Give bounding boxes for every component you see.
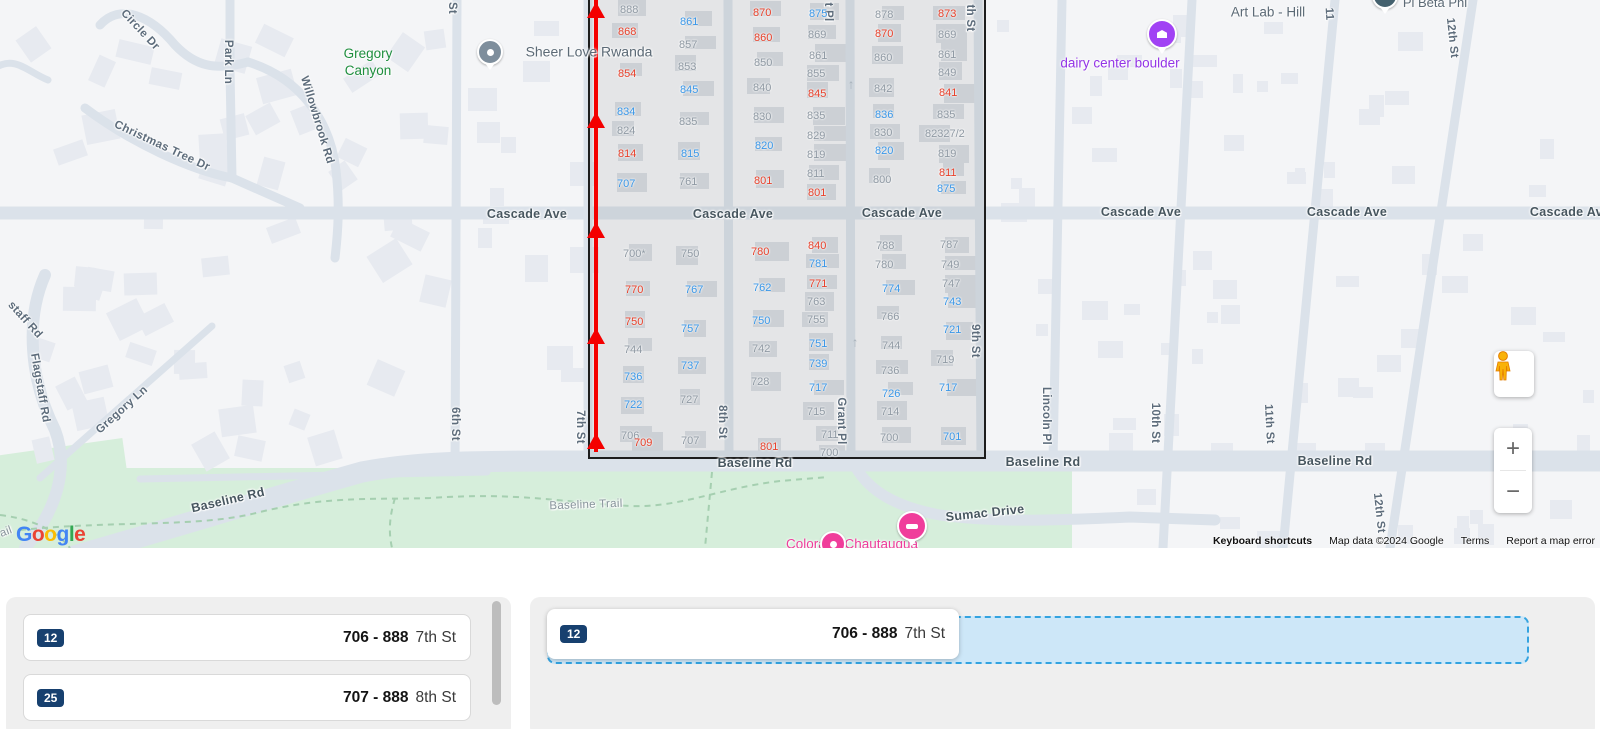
google-logo-letter: G [16, 523, 32, 546]
google-logo: Google [16, 523, 85, 547]
pins-layer [0, 0, 1600, 548]
keyboard-shortcuts-link[interactable]: Keyboard shortcuts [1213, 535, 1312, 547]
address-range-label: 706 - 8887th St [587, 625, 959, 643]
page: Circle DrPark LnWillowbrook RdChristmas … [0, 0, 1600, 729]
route-card[interactable]: 12 706 - 8887th St [547, 609, 959, 659]
address-range-label: 706 - 8887th St [64, 629, 470, 647]
poi-dot-pin[interactable] [1372, 0, 1398, 9]
count-badge: 12 [560, 625, 587, 643]
street-list-panel: 12706 - 8887th St25707 - 8888th St [6, 597, 511, 729]
pin-glyph [1157, 30, 1167, 38]
zoom-control: + − [1494, 428, 1532, 513]
poi-dot-pin[interactable] [820, 531, 846, 548]
address-range-label: 707 - 8888th St [64, 689, 470, 707]
pegman-icon [1494, 351, 1512, 381]
pin-glyph [487, 49, 494, 56]
street-range-card[interactable]: 25707 - 8888th St [23, 674, 471, 721]
terms-link[interactable]: Terms [1461, 535, 1490, 547]
street-range-card[interactable]: 12706 - 8887th St [23, 614, 471, 661]
pegman-control[interactable] [1494, 351, 1534, 397]
report-error-link[interactable]: Report a map error [1506, 535, 1595, 547]
pin-glyph [830, 541, 837, 548]
map-attribution: Keyboard shortcuts Map data ©2024 Google… [1213, 535, 1595, 547]
google-map[interactable]: Circle DrPark LnWillowbrook RdChristmas … [0, 0, 1600, 548]
zoom-in-button[interactable]: + [1494, 428, 1532, 470]
google-logo-letter: o [32, 523, 44, 546]
google-logo-letter: g [57, 523, 69, 546]
route-builder-panel: 12 706 - 8887th St [530, 597, 1595, 729]
museum-pin[interactable] [1147, 19, 1177, 49]
zoom-out-button[interactable]: − [1494, 471, 1532, 513]
google-logo-letter: o [44, 523, 56, 546]
bed-pin[interactable] [897, 511, 927, 541]
google-logo-letter: e [74, 523, 85, 546]
count-badge: 12 [37, 629, 64, 647]
map-data-text: Map data ©2024 Google [1329, 535, 1444, 547]
panel-scrollbar[interactable] [492, 601, 501, 705]
count-badge: 25 [37, 689, 64, 707]
poi-dot-pin[interactable] [477, 39, 503, 65]
pin-glyph [906, 524, 918, 529]
